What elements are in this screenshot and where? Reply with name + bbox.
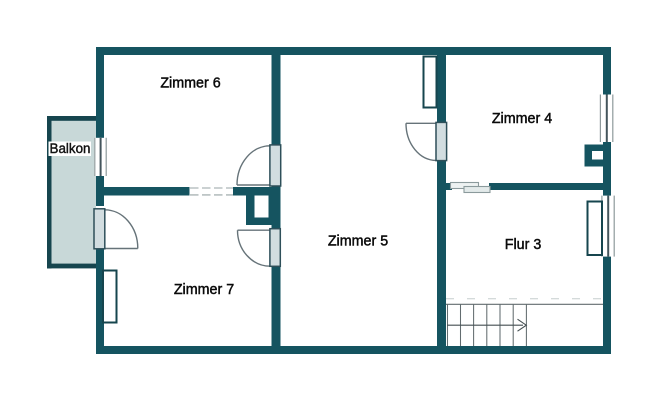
svg-text:Zimmer 6: Zimmer 6 <box>160 76 220 92</box>
svg-text:Zimmer 4: Zimmer 4 <box>492 111 552 127</box>
svg-text:Balkon: Balkon <box>50 141 91 156</box>
svg-text:Zimmer 5: Zimmer 5 <box>328 234 388 250</box>
svg-text:Flur 3: Flur 3 <box>505 237 542 253</box>
svg-text:Zimmer 7: Zimmer 7 <box>174 282 234 298</box>
